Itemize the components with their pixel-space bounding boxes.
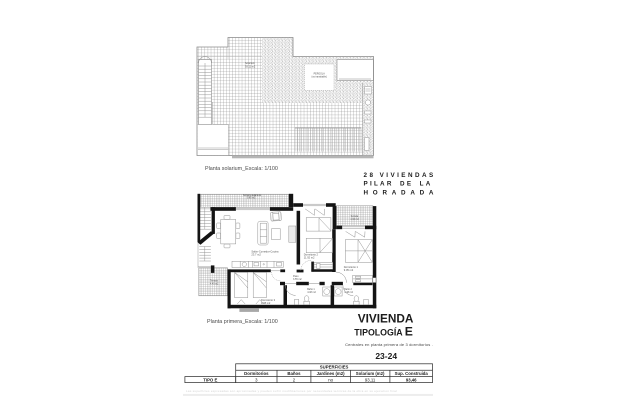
svg-text:SUPERFICIES: SUPERFICIES	[320, 364, 349, 369]
svg-text:no: no	[328, 377, 333, 382]
svg-text:3.55 m2: 3.55 m2	[293, 278, 302, 281]
svg-text:Terraza: Terraza	[351, 215, 359, 218]
svg-text:Planta solarium_Escala: 1/100: Planta solarium_Escala: 1/100	[205, 166, 278, 172]
svg-text:PILAR DE LA: PILAR DE LA	[364, 181, 433, 188]
svg-text:Baños: Baños	[287, 371, 301, 376]
svg-text:11.92 m2: 11.92 m2	[304, 256, 315, 260]
svg-text:23.7 m2: 23.7 m2	[251, 253, 261, 257]
svg-text:93.11 m2: 93.11 m2	[245, 66, 256, 69]
svg-text:PERGOLA: PERGOLA	[314, 73, 326, 76]
svg-text:4.49 m2: 4.49 m2	[210, 283, 219, 285]
svg-text:Las superficies expresadas son: Las superficies expresadas son aproximad…	[186, 389, 397, 393]
svg-text:4.90 m2: 4.90 m2	[351, 219, 360, 221]
svg-text:9.05 m2: 9.05 m2	[344, 268, 354, 272]
svg-text:Jardines (m2): Jardines (m2)	[317, 371, 346, 376]
svg-text:Dormitorios: Dormitorios	[244, 371, 269, 376]
svg-text:Solarium (m2): Solarium (m2)	[356, 371, 385, 376]
svg-text:23-24: 23-24	[375, 351, 397, 361]
svg-text:TIPOLOGÍA E: TIPOLOGÍA E	[354, 324, 413, 338]
svg-text:VIVIENDA: VIVIENDA	[358, 311, 414, 325]
svg-text:Terraza: Terraza	[210, 280, 218, 283]
svg-text:Centrales en planta primera de: Centrales en planta primera de 3 dormito…	[345, 342, 433, 347]
svg-text:9.08 m2: 9.08 m2	[261, 301, 271, 305]
svg-text:4.48 m2: 4.48 m2	[307, 291, 316, 294]
svg-text:TIPO E: TIPO E	[203, 377, 217, 382]
svg-text:5.85 m2: 5.85 m2	[247, 198, 256, 200]
svg-text:(no transitable): (no transitable)	[312, 76, 328, 79]
svg-text:28 VIVIENDAS: 28 VIVIENDAS	[364, 172, 436, 179]
svg-text:HORADADA: HORADADA	[364, 189, 439, 196]
svg-text:Terraza delantera: Terraza delantera	[243, 194, 262, 197]
svg-text:93,46: 93,46	[406, 377, 417, 382]
svg-text:Sup. Construida: Sup. Construida	[395, 371, 429, 376]
svg-text:93,11: 93,11	[365, 377, 376, 382]
svg-text:Planta primera_Escala: 1/100: Planta primera_Escala: 1/100	[207, 319, 278, 325]
